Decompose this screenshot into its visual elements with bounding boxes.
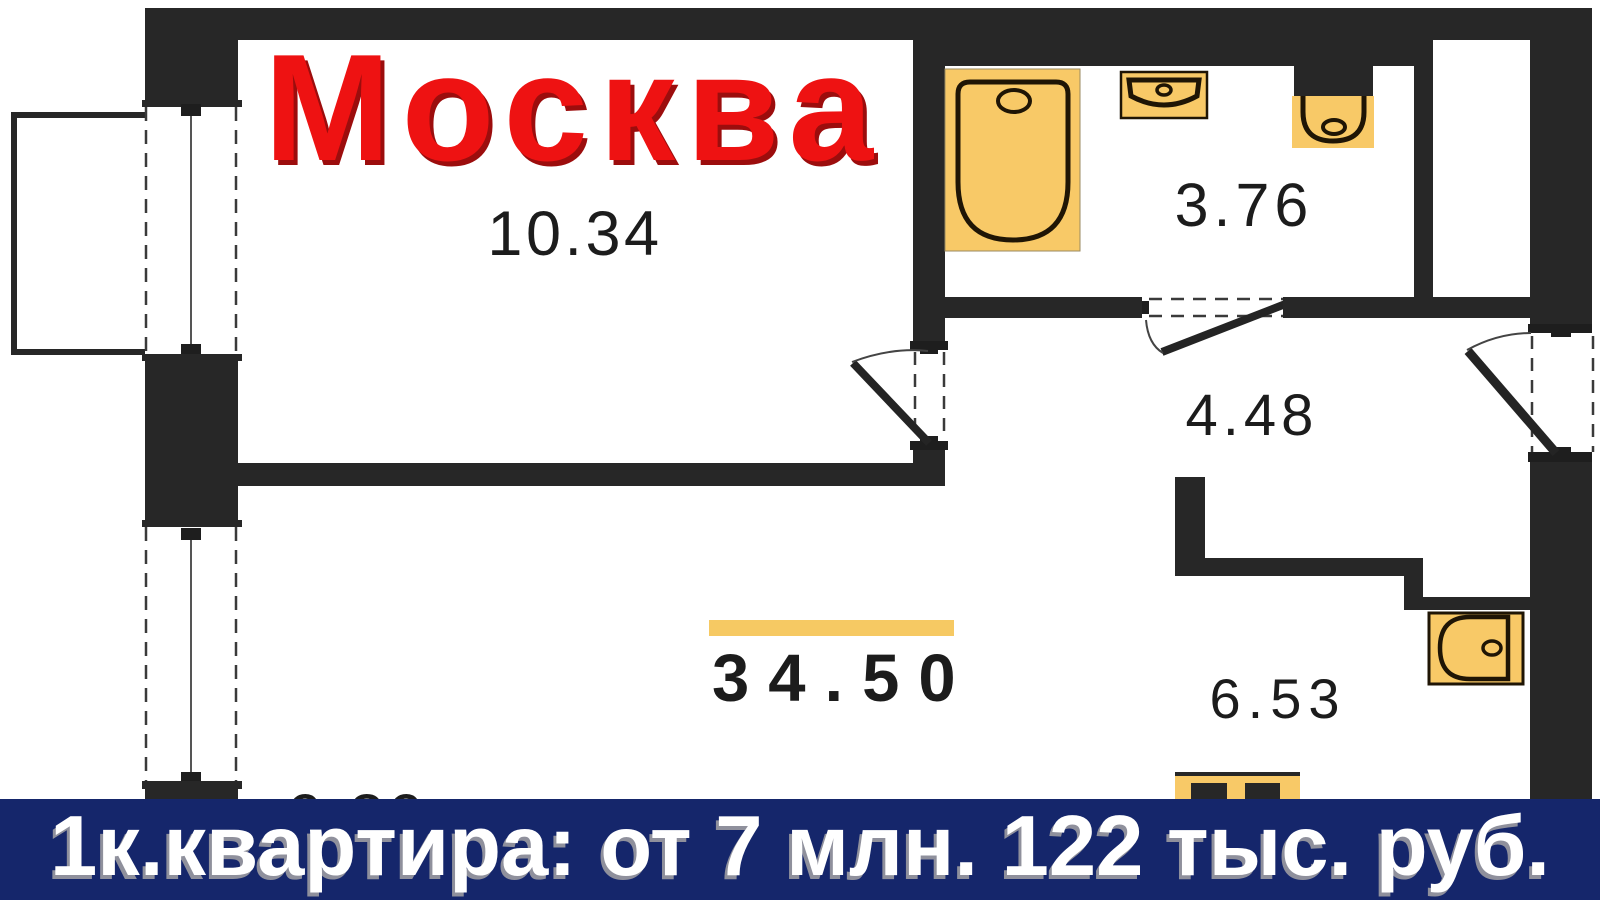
svg-text:6.53: 6.53 (1210, 667, 1347, 730)
svg-text:3.76: 3.76 (1175, 171, 1314, 239)
svg-text:4.48: 4.48 (1186, 383, 1319, 448)
svg-text:10.34: 10.34 (487, 199, 662, 269)
svg-text:34.50: 34.50 (712, 641, 975, 716)
